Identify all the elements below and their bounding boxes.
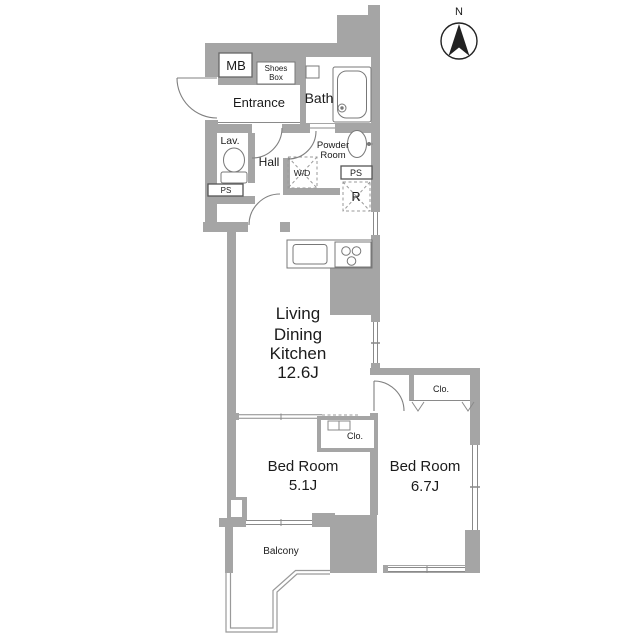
window-frame-lines: [218, 123, 478, 574]
compass-needle-icon: [449, 24, 470, 56]
label-wd: W/D: [294, 168, 311, 178]
powder-door-arc: [288, 131, 316, 159]
label-ps-left: PS: [221, 186, 232, 195]
toilet: [221, 148, 247, 183]
label-bedroom1-name: Bed Room: [268, 458, 339, 475]
label-entrance: Entrance: [233, 95, 285, 110]
sink: [348, 131, 371, 158]
label-ps-right: PS: [350, 168, 362, 178]
label-ldk-2: Dining: [274, 325, 322, 344]
label-ldk-3: Kitchen: [270, 344, 327, 363]
floor-plan-canvas: N MB Shoes Box Entrance Bath Lav. Hall P…: [0, 0, 640, 640]
label-bedroom2-size: 6.7J: [411, 478, 439, 495]
label-closet-bedroom1: Clo.: [347, 431, 363, 441]
label-hall: Hall: [259, 155, 280, 169]
label-refrigerator: R: [351, 190, 360, 204]
label-shoes-2: Box: [269, 73, 283, 82]
label-bath: Bath: [305, 90, 334, 106]
bath-shelf: [306, 66, 319, 78]
bedroom2-door-arc: [374, 381, 404, 411]
kitchen-counter: [287, 240, 372, 268]
label-shoes-1: Shoes: [265, 64, 288, 73]
label-lavatory: Lav.: [220, 135, 239, 147]
burner: [342, 247, 351, 256]
label-mb: MB: [226, 58, 246, 73]
label-ldk-size: 12.6J: [277, 363, 319, 382]
burner: [347, 257, 356, 266]
kitchen-sink: [293, 245, 327, 265]
label-ldk-1: Living: [276, 304, 320, 323]
compass-north-label: N: [455, 6, 463, 18]
burner: [352, 247, 361, 256]
balcony-railing: [226, 571, 330, 633]
compass: N: [441, 6, 477, 59]
label-closet-bedroom2: Clo.: [433, 384, 449, 394]
hanger-marks: [412, 402, 474, 411]
label-balcony: Balcony: [263, 546, 299, 557]
bathtub: [333, 67, 371, 122]
label-bedroom2-name: Bed Room: [390, 458, 461, 475]
label-bedroom1-size: 5.1J: [289, 477, 317, 494]
label-powder-2: Room: [320, 150, 345, 161]
floor-plan: N MB Shoes Box Entrance Bath Lav. Hall P…: [0, 0, 640, 640]
